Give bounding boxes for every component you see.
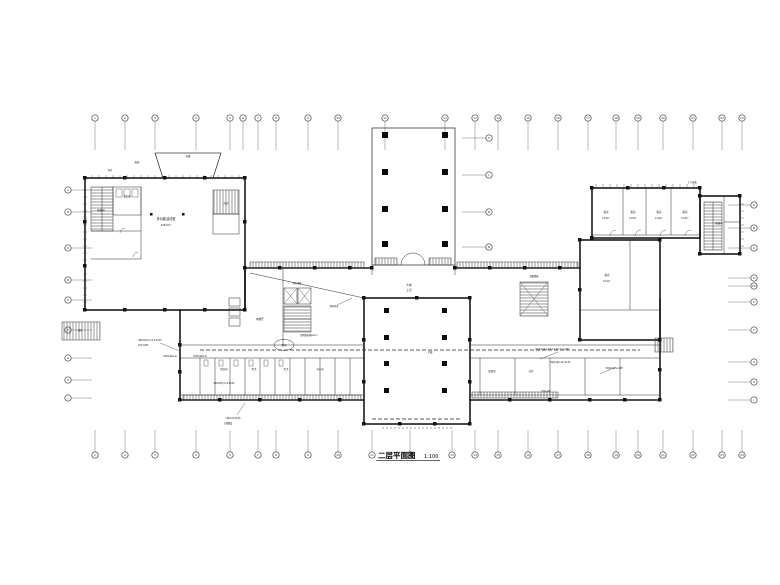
central-hall [372,308,462,428]
room-label: 楼梯间 [97,208,105,212]
annotation-label: YDJ4(1φb-a)-WE [605,367,623,370]
grid-label: J [67,396,69,400]
room-label: 12.8m² [681,217,689,220]
grid-label: 10 [336,116,340,120]
drawing-labels: 多功能活动室128.6m²楼梯间卫生间库房客房12.8m²客房12.8m²客房1… [78,154,723,425]
grid-label: M [488,210,491,214]
grid-label: 6 [242,116,244,120]
room-label: 12.8m² [602,217,610,220]
hall-columns [384,308,447,393]
annotation-label: YDZ4(1φb-b) [193,355,207,358]
grid-label: 13 [473,116,477,120]
room-label: 走廊 [428,350,433,354]
grid-label: 4 [195,453,197,457]
room-label: 12.8m² [629,217,637,220]
grid-label: 14 [496,116,500,120]
annotation-label: YDJ4-a5-SC25 [225,417,241,420]
grid-label: 17 [586,116,590,120]
annotation-label: 消防卷帘 [330,304,340,308]
grid-label: 8 [275,116,277,120]
grid-label: 17 [556,453,560,457]
grid-label: 14 [473,453,477,457]
room-label: 32.6m² [603,280,611,283]
grid-label: 12 [443,116,447,120]
room-label: 12.8m² [655,217,663,220]
hatch-strips [83,175,744,400]
interior-walls [91,153,740,415]
grid-label: 22 [720,116,724,120]
grid-label: 7 [257,116,259,120]
room-label: 卫生间 [123,194,131,198]
room-label: 女卫 [284,367,289,371]
annotation-label: YDZ4(1φb-a) [163,355,177,358]
grid-label: 2 [124,116,126,120]
drawing-title: 二层平面图 [378,451,416,460]
room-label: 楼梯间 [715,221,723,225]
grid-label: B [753,226,755,230]
grid-label: 19 [636,116,640,120]
grid-label: J [753,398,755,402]
grid-label: 11 [383,116,387,120]
annotation-label: YDJ4(1φ6-a5)-SC25 [549,361,571,364]
room-label: 客房 [630,210,636,214]
grid-label: 19 [614,453,618,457]
room-label: 大堂 [406,283,412,287]
grid-label: 5 [229,116,231,120]
grid-label: 1 [94,116,96,120]
annotation-label: SC15-WE [138,344,149,347]
grid-label: 5 [229,453,231,457]
grid-label: N [488,245,490,249]
room-label: 128.6m² [161,223,172,227]
room-label: 消防电梯 [293,281,303,285]
outer-walls [62,178,740,424]
annotation-label: WDZ-BYJ-5×4-SC25 [213,382,235,385]
room-label: 多功能活动室 [156,216,175,221]
drawing-scale: 1:100 [424,454,438,460]
room-label: 客房 [604,273,610,277]
room-label: 电梯厅 [256,317,264,321]
grid-label: 23 [740,116,744,120]
floor-plan-page: 1234567891011121314151617181920212223 12… [0,0,780,585]
room-label: 上人屋面 [687,180,697,184]
grid-label: 16 [556,116,560,120]
room-label: 屋面 [135,160,140,164]
room-label: 雨篷 [186,154,191,158]
grid-label: 18 [586,453,590,457]
floor-plan-canvas: 1234567891011121314151617181920212223 12… [0,0,780,585]
grid-label: 7 [257,453,259,457]
room-label: 客房 [656,210,662,214]
room-label: 上空 [406,288,412,292]
grid-label: B [67,210,69,214]
grid-label: F [753,328,755,332]
grid-axis-atrium-right: KLMN [462,135,492,250]
grid-label: H [753,380,755,384]
grid-label: 18 [614,116,618,120]
grid-label: 3 [154,453,156,457]
grid-label: 21 [691,116,695,120]
grid-label: 13 [450,453,454,457]
grid-label: 15 [526,116,530,120]
room-label: 值班室 [488,369,496,373]
grid-label: 9 [307,116,309,120]
room-label: 库房 [529,369,534,373]
grid-label: H [67,378,69,382]
grid-label: C [67,246,69,250]
room-label: 男卫 [252,367,257,371]
room-label: 开水间 [316,367,324,371]
grid-label: C [753,246,755,250]
title-block: 二层平面图 1:100 [376,451,440,461]
grid-label: 9 [307,453,309,457]
grid-label: 24 [740,453,744,457]
annotation-label: 照明配电箱AL2-1 [300,333,318,337]
grid-label: 22 [691,453,695,457]
grid-label: 11 [370,453,374,457]
atrium-columns [382,132,448,247]
room-label: 风井 [108,168,113,172]
annotation-label: 沿墙敷设 [224,421,234,425]
annotation-label: WDZ-BYJ-3×2.5-SC15 [138,339,162,342]
grid-label: 21 [661,453,665,457]
atrium-tower [372,128,455,275]
grid-label: 4 [195,116,197,120]
grid-label: 20 [636,453,640,457]
grid-label: 2 [124,453,126,457]
grid-label: 3 [154,116,156,120]
room-label: 客房 [682,210,688,214]
grid-label: 1/D [751,284,757,288]
wall-posts [83,176,742,426]
grid-axis-top: 1234567891011121314151617181920212223 [92,115,745,150]
room-label: 疏散楼梯 [530,274,540,278]
grid-label: 23 [720,453,724,457]
room-label: 客房 [603,210,609,214]
grid-label: 20 [661,116,665,120]
grid-label: 16 [526,453,530,457]
annotation-label: YDJ4-WE [541,390,551,393]
room-label: 库房 [224,201,229,205]
room-label: 盥洗间 [220,367,228,371]
grid-label: 1 [94,453,96,457]
grid-axis-left: ABCDEFGHJ [65,187,92,401]
grid-label: 15 [496,453,500,457]
grid-axis-bottom: 12345789101112131415161718192021222324 [92,430,745,458]
room-label: 配电 [282,343,287,347]
grid-label: 8 [275,453,277,457]
annotation-label: YDJ4(1φ6-a4)7.0-9.0(1.5-1)-WE [535,348,569,351]
grid-label: E [67,298,69,302]
grid-label: 10 [336,453,340,457]
grid-label: E [753,300,755,304]
